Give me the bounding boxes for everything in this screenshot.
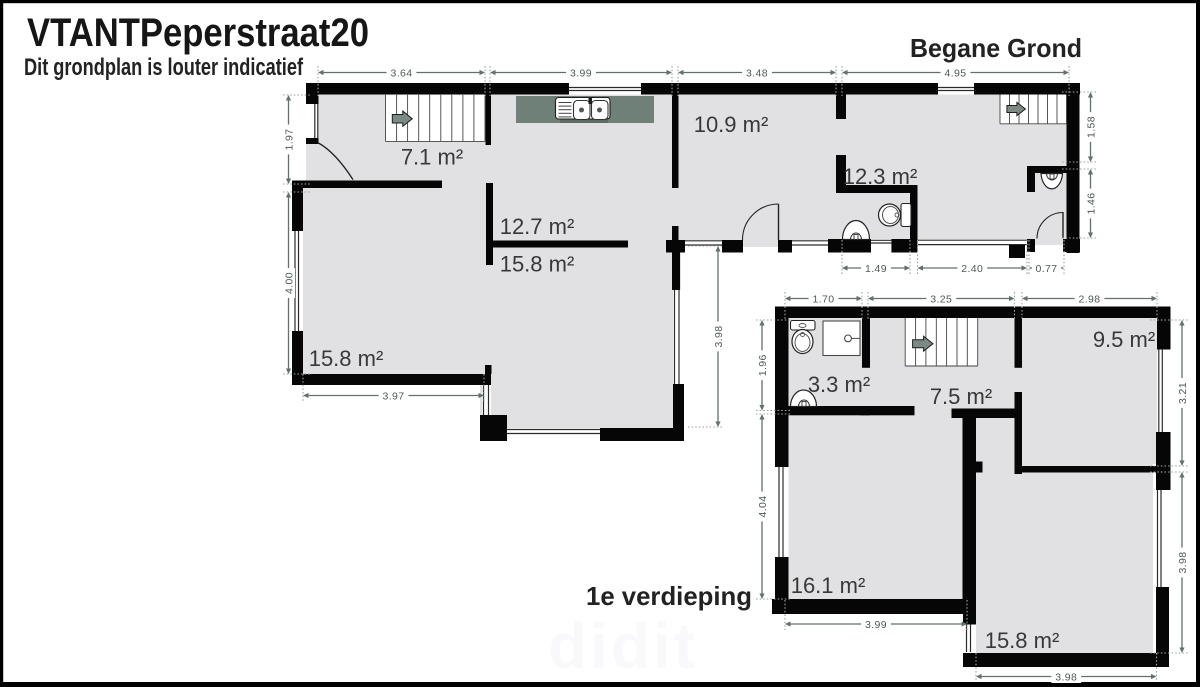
svg-text:1.96: 1.96 xyxy=(757,354,769,376)
svg-text:1.97: 1.97 xyxy=(284,128,296,150)
svg-text:Begane Grond: Begane Grond xyxy=(910,33,1082,63)
svg-text:4.04: 4.04 xyxy=(757,495,769,517)
svg-text:1e verdieping: 1e verdieping xyxy=(586,581,752,611)
svg-text:9.5 m²: 9.5 m² xyxy=(1093,327,1155,352)
svg-text:3.64: 3.64 xyxy=(390,68,412,80)
svg-text:3.97: 3.97 xyxy=(382,391,404,403)
svg-text:2.98: 2.98 xyxy=(1078,294,1100,306)
svg-text:7.1 m²: 7.1 m² xyxy=(401,145,463,170)
svg-text:1.58: 1.58 xyxy=(1086,116,1098,138)
svg-text:12.7 m²: 12.7 m² xyxy=(500,214,575,239)
svg-text:Dit grondplan is louter indica: Dit grondplan is louter indicatief xyxy=(24,54,304,81)
svg-text:3.99: 3.99 xyxy=(865,619,887,631)
svg-text:2.40: 2.40 xyxy=(961,263,983,275)
svg-text:3.21: 3.21 xyxy=(1177,382,1189,404)
svg-text:1.49: 1.49 xyxy=(865,263,887,275)
svg-text:4.00: 4.00 xyxy=(284,272,296,294)
svg-text:10.9 m²: 10.9 m² xyxy=(694,112,769,137)
svg-text:3.25: 3.25 xyxy=(930,294,952,306)
svg-text:12.3 m²: 12.3 m² xyxy=(843,164,918,189)
svg-text:15.8 m²: 15.8 m² xyxy=(309,346,384,371)
svg-text:7.5 m²: 7.5 m² xyxy=(930,384,992,409)
svg-text:3.99: 3.99 xyxy=(570,68,592,80)
svg-text:3.98: 3.98 xyxy=(1055,672,1077,684)
svg-text:3.48: 3.48 xyxy=(746,68,768,80)
svg-text:3.98: 3.98 xyxy=(1177,551,1189,573)
svg-text:0.77: 0.77 xyxy=(1035,263,1057,275)
svg-text:1.46: 1.46 xyxy=(1086,192,1098,214)
svg-text:4.95: 4.95 xyxy=(944,68,966,80)
svg-text:3.3 m²: 3.3 m² xyxy=(808,372,870,397)
svg-text:1.70: 1.70 xyxy=(812,294,834,306)
svg-text:3.98: 3.98 xyxy=(713,325,725,347)
svg-text:15.8 m²: 15.8 m² xyxy=(500,252,575,277)
svg-text:VTANTPeperstraat20: VTANTPeperstraat20 xyxy=(27,11,369,55)
svg-text:didit: didit xyxy=(548,610,698,682)
svg-text:16.1 m²: 16.1 m² xyxy=(791,573,866,598)
svg-text:15.8 m²: 15.8 m² xyxy=(985,628,1060,653)
